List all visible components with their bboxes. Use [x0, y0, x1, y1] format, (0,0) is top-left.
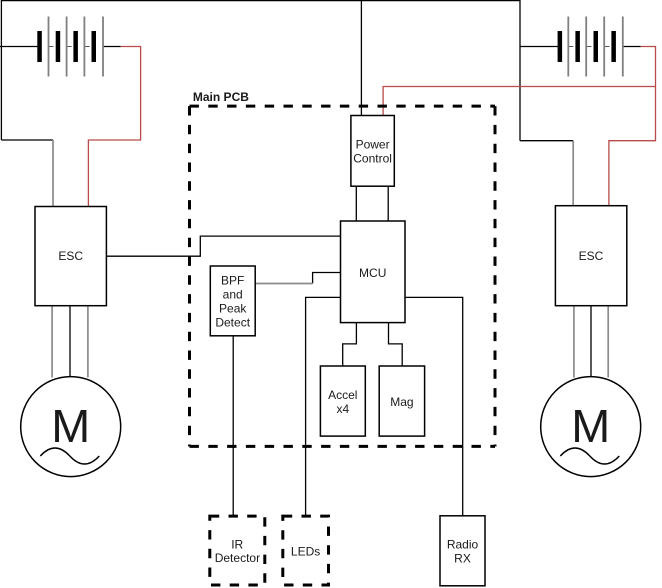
svg-text:ESC: ESC — [58, 249, 83, 263]
svg-text:Detect: Detect — [215, 316, 250, 330]
svg-text:Detector: Detector — [215, 551, 260, 565]
svg-text:Peak: Peak — [219, 302, 247, 316]
svg-text:MCU: MCU — [359, 266, 386, 280]
svg-text:and: and — [223, 288, 243, 302]
svg-text:IR: IR — [231, 538, 243, 552]
svg-text:ESC: ESC — [579, 249, 604, 263]
svg-text:Radio: Radio — [447, 538, 479, 552]
svg-text:Main PCB: Main PCB — [193, 90, 249, 104]
svg-text:Power: Power — [356, 138, 390, 152]
svg-text:M: M — [571, 400, 610, 452]
svg-text:RX: RX — [454, 552, 471, 566]
svg-text:LEDs: LEDs — [291, 545, 320, 559]
svg-text:Control: Control — [353, 152, 392, 166]
svg-text:Mag: Mag — [390, 395, 413, 409]
svg-text:BPF: BPF — [221, 274, 244, 288]
svg-text:x4: x4 — [336, 402, 349, 416]
svg-text:M: M — [51, 400, 90, 452]
svg-text:Accel: Accel — [328, 388, 357, 402]
